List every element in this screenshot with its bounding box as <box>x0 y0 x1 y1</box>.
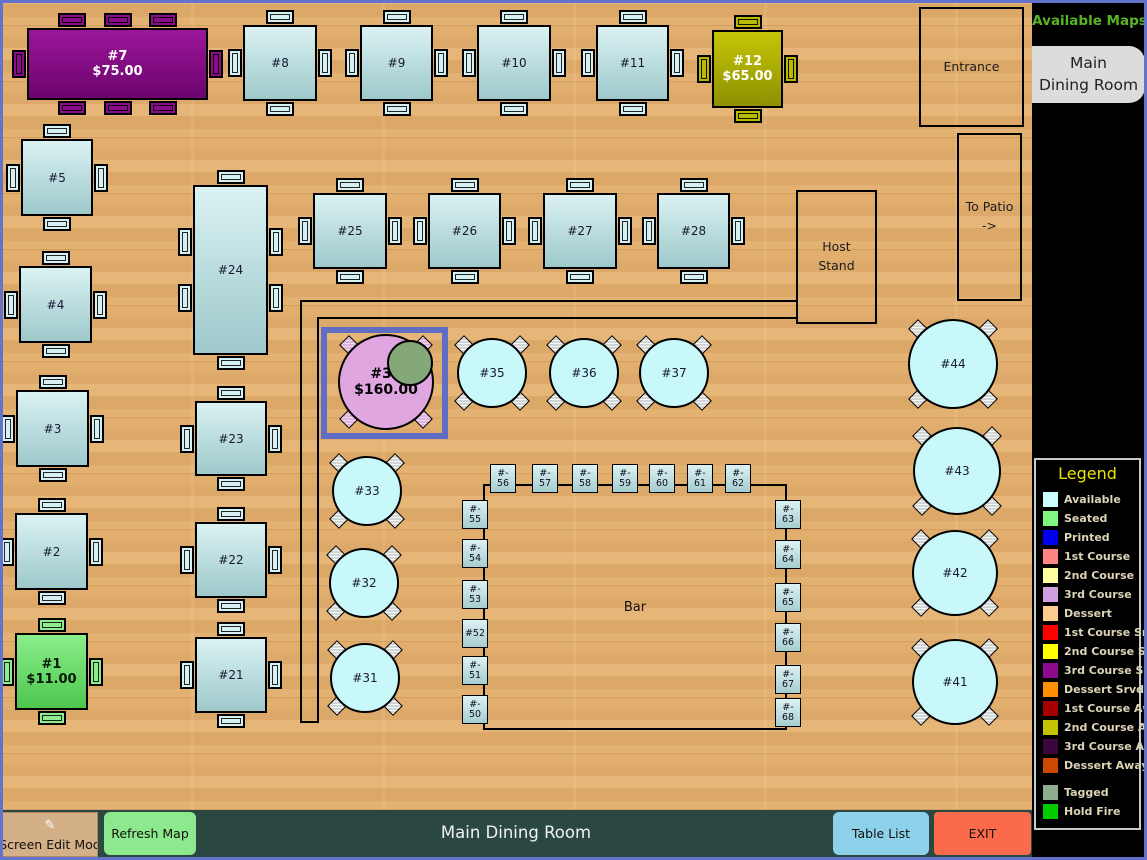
map-button-label-line2: Dining Room <box>1039 76 1138 94</box>
chair <box>413 217 427 245</box>
legend-label: 3rd Course Away <box>1064 740 1147 753</box>
table-1[interactable]: #1$11.00 <box>15 633 88 710</box>
table-44[interactable]: #44 <box>908 319 998 409</box>
legend-label: 1st Course Away <box>1064 702 1147 715</box>
chair <box>38 711 66 725</box>
table-36[interactable]: #36 <box>549 338 619 408</box>
chair <box>734 15 762 29</box>
chair <box>58 101 86 115</box>
table-32[interactable]: #32 <box>329 548 399 618</box>
chair <box>383 10 411 24</box>
chair <box>149 13 177 27</box>
table-23[interactable]: #23 <box>195 401 267 476</box>
bottom-bar: Main Dining Room ✎ Screen Edit Mod Refre… <box>0 810 1032 857</box>
table-9[interactable]: #9 <box>360 25 433 101</box>
room-host-stand: Host Stand <box>796 190 877 324</box>
chair <box>38 618 66 632</box>
legend-label: Printed <box>1064 531 1110 544</box>
chair <box>38 591 66 605</box>
legend-label: Seated <box>1064 512 1107 525</box>
chair <box>268 546 282 574</box>
table-22[interactable]: #22 <box>195 522 267 598</box>
legend-label: 3rd Course <box>1064 588 1132 601</box>
exit-button[interactable]: EXIT <box>934 812 1031 855</box>
legend-item-seated: Seated <box>1036 509 1139 528</box>
chair <box>383 102 411 116</box>
legend-swatch <box>1043 530 1058 545</box>
table-24[interactable]: #24 <box>193 185 268 355</box>
chair <box>104 13 132 27</box>
chair <box>217 507 245 521</box>
legend-item-printed: Printed <box>1036 528 1139 547</box>
legend-item-3rd-course-away: 3rd Course Away <box>1036 737 1139 756</box>
chair <box>502 217 516 245</box>
bar-seat-50[interactable]: #-50 <box>462 695 488 724</box>
chair <box>39 375 67 389</box>
chair <box>581 49 595 77</box>
table-3[interactable]: #3 <box>16 390 89 467</box>
table-12[interactable]: #12$65.00 <box>712 30 783 108</box>
chair <box>680 270 708 284</box>
legend-swatch <box>1043 511 1058 526</box>
pencil-icon: ✎ <box>45 819 56 832</box>
chair <box>42 251 70 265</box>
legend-item-dessert-srvd: Dessert Srvd <box>1036 680 1139 699</box>
chair <box>269 284 283 312</box>
wall-line <box>300 721 319 723</box>
chair <box>434 49 448 77</box>
available-maps-title: Available Maps <box>1032 0 1147 29</box>
legend-item-2nd-course: 2nd Course <box>1036 566 1139 585</box>
legend-rows: AvailableSeatedPrinted1st Course2nd Cour… <box>1036 490 1139 821</box>
table-33[interactable]: #33 <box>332 456 402 526</box>
chair <box>104 101 132 115</box>
chair <box>345 49 359 77</box>
legend-label: Hold Fire <box>1064 805 1120 818</box>
legend-item-3rd-course: 3rd Course <box>1036 585 1139 604</box>
bar-seat-53[interactable]: #-53 <box>462 580 488 609</box>
bar-label: Bar <box>624 600 646 615</box>
bar-seat-52[interactable]: #52 <box>462 619 488 648</box>
map-button-main-dining-room[interactable]: MainDining Room <box>1032 46 1145 103</box>
legend-label: Available <box>1064 493 1121 506</box>
chair <box>318 49 332 77</box>
chair <box>217 714 245 728</box>
legend-label: 1st Course Srvd <box>1064 626 1147 639</box>
chair <box>336 270 364 284</box>
legend-label: 3rd Course Srvd <box>1064 664 1147 677</box>
legend-swatch <box>1043 663 1058 678</box>
chair <box>269 228 283 256</box>
chair <box>336 178 364 192</box>
legend-label: Dessert <box>1064 607 1112 620</box>
legend-swatch <box>1043 785 1058 800</box>
chair <box>451 270 479 284</box>
tagged-indicator <box>387 340 433 386</box>
bar-seat-55[interactable]: #-55 <box>462 500 488 529</box>
bar-seat-63[interactable]: #-63 <box>775 500 801 529</box>
chair <box>58 13 86 27</box>
room-entrance: Entrance <box>919 7 1024 127</box>
bar-seat-61[interactable]: #-61 <box>687 464 713 493</box>
chair <box>0 658 14 686</box>
chair <box>528 217 542 245</box>
legend-swatch <box>1043 701 1058 716</box>
wall-line <box>300 300 797 302</box>
chair <box>217 599 245 613</box>
legend-swatch <box>1043 804 1058 819</box>
chair <box>180 661 194 689</box>
bar-seat-68[interactable]: #-68 <box>775 698 801 727</box>
legend-swatch <box>1043 606 1058 621</box>
legend-item-1st-course-away: 1st Course Away <box>1036 699 1139 718</box>
legend-swatch <box>1043 720 1058 735</box>
chair <box>228 49 242 77</box>
legend-swatch <box>1043 568 1058 583</box>
chair <box>680 178 708 192</box>
legend-item-dessert-away: Dessert Away <box>1036 756 1139 775</box>
chair <box>619 102 647 116</box>
bar-seat-56[interactable]: #-56 <box>490 464 516 493</box>
chair <box>697 55 711 83</box>
table-25[interactable]: #25 <box>313 193 387 269</box>
legend-label: 2nd Course Away <box>1064 721 1147 734</box>
table-11[interactable]: #11 <box>596 25 669 101</box>
legend-item-2nd-course-away: 2nd Course Away <box>1036 718 1139 737</box>
chair <box>734 109 762 123</box>
chair <box>566 178 594 192</box>
chair <box>149 101 177 115</box>
chair <box>89 538 103 566</box>
legend-item-1st-course: 1st Course <box>1036 547 1139 566</box>
chair <box>642 217 656 245</box>
bar-seat-67[interactable]: #-67 <box>775 665 801 694</box>
chair <box>89 658 103 686</box>
floor-map: EntranceTo Patio ->Host StandBar#-56#-57… <box>0 0 1032 810</box>
bar-seat-64[interactable]: #-64 <box>775 540 801 569</box>
chair <box>217 386 245 400</box>
chair <box>451 178 479 192</box>
chair <box>94 164 108 192</box>
chair <box>93 291 107 319</box>
bar-seat-66[interactable]: #-66 <box>775 623 801 652</box>
legend-item-available: Available <box>1036 490 1139 509</box>
legend-item-1st-course-srvd: 1st Course Srvd <box>1036 623 1139 642</box>
table-8[interactable]: #8 <box>243 25 317 101</box>
legend-label: Tagged <box>1064 786 1109 799</box>
chair <box>298 217 312 245</box>
chair <box>43 124 71 138</box>
chair <box>462 49 476 77</box>
screen-edit-mode-label: Screen Edit Mod <box>2 837 98 852</box>
chair <box>566 270 594 284</box>
bar-seat-58[interactable]: #-58 <box>572 464 598 493</box>
table-28[interactable]: #28 <box>657 193 730 269</box>
legend-label: 2nd Course <box>1064 569 1134 582</box>
table-4[interactable]: #4 <box>19 266 92 343</box>
chair <box>42 344 70 358</box>
legend-label: Dessert Away <box>1064 759 1147 772</box>
table-21[interactable]: #21 <box>195 637 267 713</box>
legend-swatch <box>1043 739 1058 754</box>
table-10[interactable]: #10 <box>477 25 551 101</box>
chair <box>217 356 245 370</box>
chair <box>217 622 245 636</box>
room-to-patio: To Patio -> <box>957 133 1022 301</box>
chair <box>178 228 192 256</box>
legend-swatch <box>1043 644 1058 659</box>
table-26[interactable]: #26 <box>428 193 501 269</box>
sidebar: Available Maps MainDining Room Legend Av… <box>1032 0 1147 860</box>
table-list-button[interactable]: Table List <box>833 812 929 855</box>
legend-swatch <box>1043 682 1058 697</box>
chair <box>12 50 26 78</box>
chair <box>209 50 223 78</box>
chair <box>268 425 282 453</box>
legend-label: 2nd Course Srvd <box>1064 645 1147 658</box>
screen-edit-mode-button[interactable]: ✎ Screen Edit Mod <box>2 812 98 857</box>
chair <box>266 10 294 24</box>
chair <box>90 415 104 443</box>
chair <box>731 217 745 245</box>
bar-seat-51[interactable]: #-51 <box>462 656 488 685</box>
table-5[interactable]: #5 <box>21 139 93 216</box>
bar-seat-65[interactable]: #-65 <box>775 583 801 612</box>
chair <box>500 102 528 116</box>
table-35[interactable]: #35 <box>457 338 527 408</box>
map-button-label-line1: Main <box>1070 54 1107 72</box>
legend-panel: Legend AvailableSeatedPrinted1st Course2… <box>1034 458 1141 830</box>
chair <box>0 538 14 566</box>
table-27[interactable]: #27 <box>543 193 617 269</box>
bar-outline: Bar <box>483 484 787 730</box>
legend-swatch <box>1043 587 1058 602</box>
legend-swatch <box>1043 758 1058 773</box>
legend-title: Legend <box>1036 464 1139 483</box>
pos-floor-map-screen: EntranceTo Patio ->Host StandBar#-56#-57… <box>0 0 1147 860</box>
chair <box>670 49 684 77</box>
legend-swatch <box>1043 549 1058 564</box>
chair <box>268 661 282 689</box>
legend-item-2nd-course-srvd: 2nd Course Srvd <box>1036 642 1139 661</box>
chair <box>43 217 71 231</box>
bar-seat-62[interactable]: #-62 <box>725 464 751 493</box>
chair <box>552 49 566 77</box>
legend-label: 1st Course <box>1064 550 1130 563</box>
chair <box>178 284 192 312</box>
legend-item-3rd-course-srvd: 3rd Course Srvd <box>1036 661 1139 680</box>
table-42[interactable]: #42 <box>912 530 998 616</box>
wall-line <box>300 300 302 723</box>
table-2[interactable]: #2 <box>15 513 88 590</box>
chair <box>4 291 18 319</box>
refresh-map-button[interactable]: Refresh Map <box>104 812 196 855</box>
chair <box>38 498 66 512</box>
chair <box>784 55 798 83</box>
wall-line <box>317 317 797 319</box>
legend-item-dessert: Dessert <box>1036 604 1139 623</box>
legend-item-hold-fire: Hold Fire <box>1036 802 1139 821</box>
chair <box>500 10 528 24</box>
chair <box>266 102 294 116</box>
chair <box>217 170 245 184</box>
legend-swatch <box>1043 492 1058 507</box>
chair <box>1 415 15 443</box>
legend-item-tagged: Tagged <box>1036 783 1139 802</box>
bar-seat-57[interactable]: #-57 <box>532 464 558 493</box>
chair <box>180 425 194 453</box>
chair <box>388 217 402 245</box>
table-7[interactable]: #7$75.00 <box>27 28 208 100</box>
chair <box>39 468 67 482</box>
chair <box>619 10 647 24</box>
chair <box>618 217 632 245</box>
chair <box>180 546 194 574</box>
legend-swatch <box>1043 625 1058 640</box>
table-37[interactable]: #37 <box>639 338 709 408</box>
chair <box>217 477 245 491</box>
table-41[interactable]: #41 <box>912 639 998 725</box>
wall-line <box>317 317 319 721</box>
bar-seat-60[interactable]: #-60 <box>649 464 675 493</box>
legend-label: Dessert Srvd <box>1064 683 1144 696</box>
table-31[interactable]: #31 <box>330 643 400 713</box>
bar-seat-59[interactable]: #-59 <box>612 464 638 493</box>
chair <box>6 164 20 192</box>
table-43[interactable]: #43 <box>913 427 1001 515</box>
bar-seat-54[interactable]: #-54 <box>462 539 488 568</box>
